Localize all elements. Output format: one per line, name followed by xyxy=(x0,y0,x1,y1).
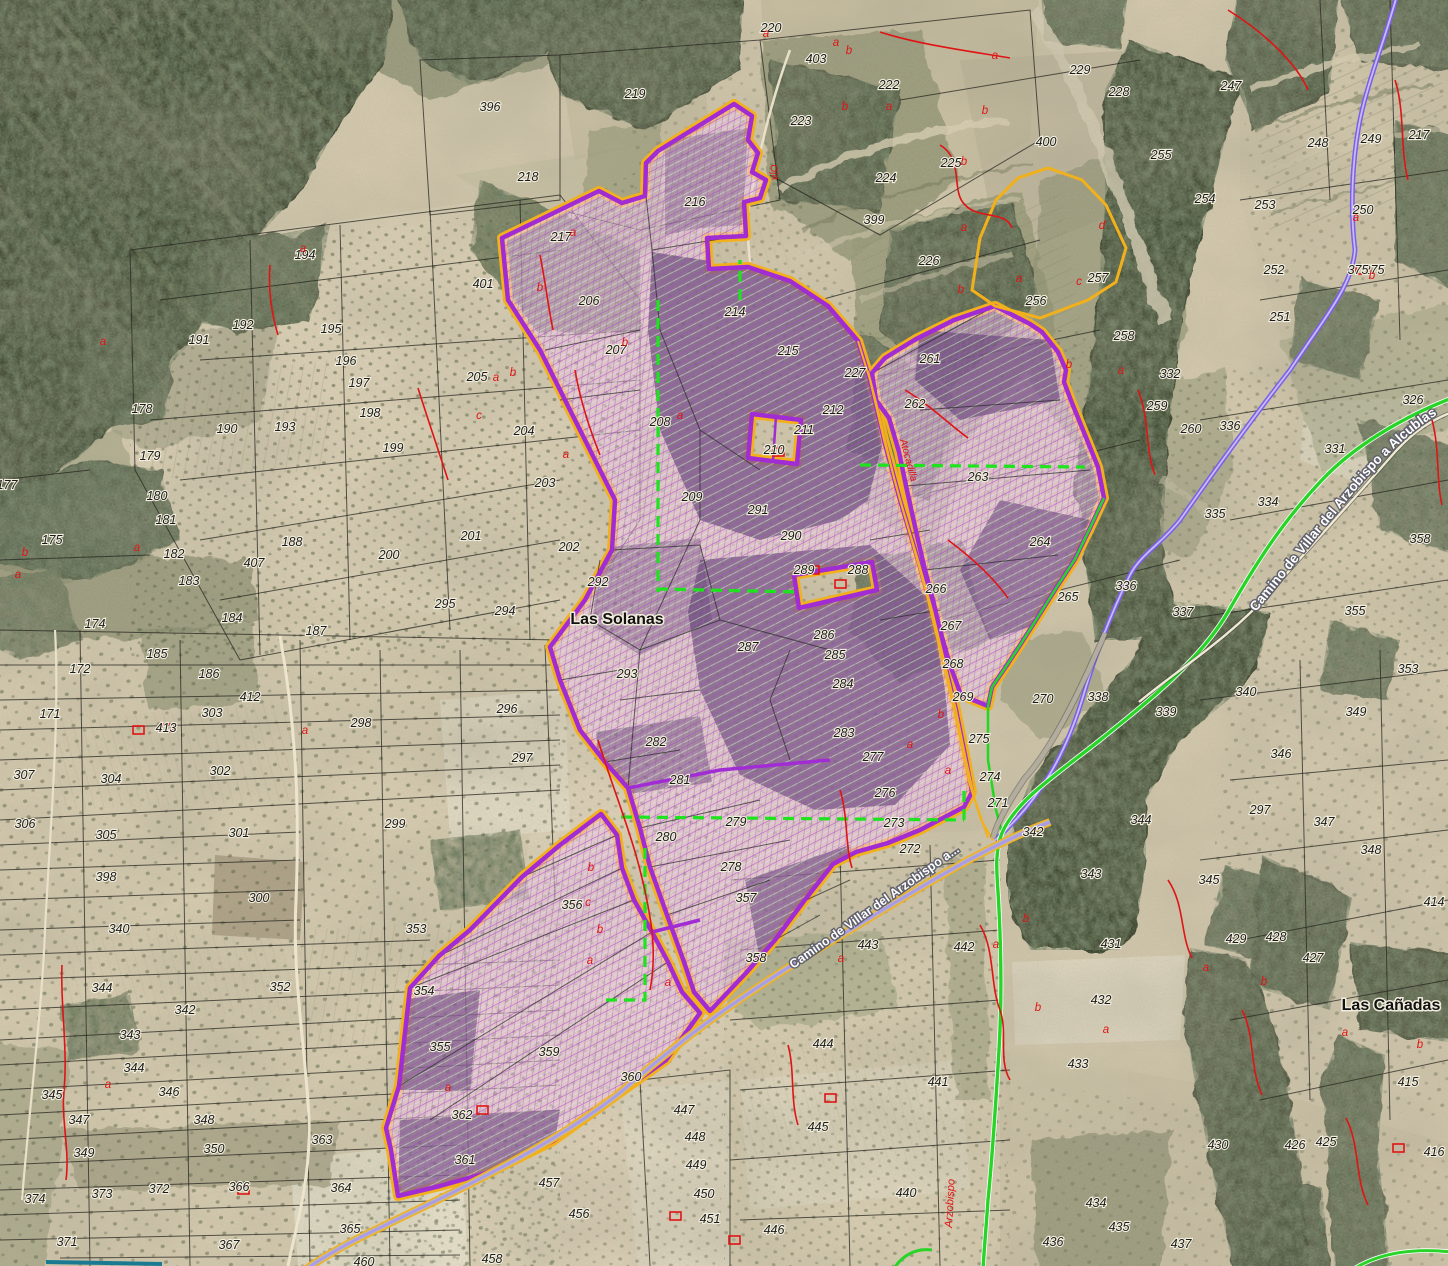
svg-text:209: 209 xyxy=(681,490,703,504)
svg-text:228: 228 xyxy=(1108,85,1130,99)
svg-text:183: 183 xyxy=(179,574,200,588)
svg-text:c: c xyxy=(585,897,591,909)
svg-text:373: 373 xyxy=(92,1187,113,1201)
svg-text:a: a xyxy=(1118,365,1124,377)
svg-text:a: a xyxy=(961,222,967,234)
svg-text:457: 457 xyxy=(539,1176,561,1190)
svg-text:278: 278 xyxy=(720,860,742,874)
svg-text:400: 400 xyxy=(1036,135,1057,149)
svg-text:a: a xyxy=(15,569,21,581)
svg-text:251: 251 xyxy=(1269,310,1291,324)
svg-text:a: a xyxy=(1342,1027,1348,1039)
svg-text:a: a xyxy=(1016,273,1022,285)
svg-text:a: a xyxy=(677,410,683,422)
svg-text:344: 344 xyxy=(124,1061,145,1075)
svg-text:212: 212 xyxy=(822,403,844,417)
svg-text:349: 349 xyxy=(74,1146,95,1160)
svg-text:b: b xyxy=(961,156,968,168)
svg-text:b: b xyxy=(597,924,604,936)
svg-text:199: 199 xyxy=(383,441,404,455)
svg-text:174: 174 xyxy=(85,617,106,631)
svg-text:197: 197 xyxy=(349,376,371,390)
svg-text:356: 356 xyxy=(562,898,583,912)
svg-text:255: 255 xyxy=(1150,148,1172,162)
svg-text:a: a xyxy=(665,977,671,989)
svg-text:205: 205 xyxy=(466,370,488,384)
svg-text:413: 413 xyxy=(156,721,177,735)
svg-text:a: a xyxy=(100,336,106,348)
svg-text:284: 284 xyxy=(832,677,854,691)
svg-text:216: 216 xyxy=(684,195,706,209)
svg-text:b: b xyxy=(958,284,965,296)
svg-text:204: 204 xyxy=(513,424,535,438)
svg-text:348: 348 xyxy=(1361,843,1382,857)
svg-text:303: 303 xyxy=(202,706,223,720)
svg-text:342: 342 xyxy=(1023,825,1044,839)
svg-text:339: 339 xyxy=(1156,705,1177,719)
svg-text:227: 227 xyxy=(844,366,867,380)
svg-text:c: c xyxy=(476,410,482,422)
svg-text:178: 178 xyxy=(132,402,153,416)
svg-text:a: a xyxy=(570,227,576,239)
svg-text:343: 343 xyxy=(120,1028,141,1042)
svg-text:b: b xyxy=(938,709,945,721)
svg-text:c: c xyxy=(1076,276,1082,288)
svg-text:177: 177 xyxy=(0,478,18,492)
svg-text:274: 274 xyxy=(979,770,1001,784)
svg-text:340: 340 xyxy=(109,922,130,936)
svg-text:217: 217 xyxy=(1408,128,1431,142)
svg-text:441: 441 xyxy=(928,1075,949,1089)
svg-text:279: 279 xyxy=(725,815,747,829)
svg-text:261: 261 xyxy=(919,352,941,366)
svg-text:334: 334 xyxy=(1258,495,1279,509)
svg-text:445: 445 xyxy=(808,1120,829,1134)
svg-text:272: 272 xyxy=(899,842,921,856)
svg-text:171: 171 xyxy=(40,707,61,721)
svg-text:259: 259 xyxy=(1146,399,1168,413)
svg-text:460: 460 xyxy=(354,1255,375,1266)
svg-text:266: 266 xyxy=(925,582,947,596)
svg-text:360: 360 xyxy=(621,1070,642,1084)
svg-text:358: 358 xyxy=(1410,532,1431,546)
svg-text:431: 431 xyxy=(1101,937,1122,951)
svg-text:355: 355 xyxy=(430,1040,451,1054)
svg-text:353: 353 xyxy=(1398,662,1419,676)
svg-text:218: 218 xyxy=(517,170,539,184)
svg-text:352: 352 xyxy=(270,980,291,994)
svg-text:446: 446 xyxy=(764,1223,785,1237)
svg-text:214: 214 xyxy=(724,305,746,319)
svg-text:253: 253 xyxy=(1254,198,1276,212)
svg-text:443: 443 xyxy=(858,938,879,952)
svg-text:428: 428 xyxy=(1266,930,1287,944)
svg-text:260: 260 xyxy=(1180,422,1202,436)
svg-text:433: 433 xyxy=(1068,1057,1089,1071)
svg-text:444: 444 xyxy=(813,1037,834,1051)
svg-text:b: b xyxy=(1066,359,1073,371)
svg-text:195: 195 xyxy=(321,322,342,336)
svg-text:a: a xyxy=(300,243,306,255)
svg-text:304: 304 xyxy=(101,772,122,786)
svg-text:a: a xyxy=(445,1082,451,1094)
svg-text:191: 191 xyxy=(189,333,210,347)
svg-text:a: a xyxy=(1103,1024,1109,1036)
svg-text:429: 429 xyxy=(1226,932,1247,946)
svg-text:285: 285 xyxy=(824,648,846,662)
svg-text:b: b xyxy=(982,105,989,117)
svg-text:a: a xyxy=(134,542,140,554)
svg-text:451: 451 xyxy=(700,1212,721,1226)
svg-text:344: 344 xyxy=(1131,813,1152,827)
svg-text:247: 247 xyxy=(1220,79,1243,93)
svg-text:b: b xyxy=(588,862,595,874)
svg-text:301: 301 xyxy=(229,826,250,840)
svg-text:188: 188 xyxy=(282,535,303,549)
svg-text:b: b xyxy=(1417,1039,1424,1051)
svg-text:434: 434 xyxy=(1086,1196,1107,1210)
svg-text:371: 371 xyxy=(57,1235,78,1249)
svg-text:361: 361 xyxy=(455,1153,476,1167)
svg-text:264: 264 xyxy=(1029,535,1051,549)
svg-text:331: 331 xyxy=(1325,442,1346,456)
svg-text:291: 291 xyxy=(747,503,769,517)
svg-text:226: 226 xyxy=(918,254,940,268)
svg-text:198: 198 xyxy=(360,406,381,420)
svg-text:192: 192 xyxy=(233,318,254,332)
svg-text:262: 262 xyxy=(904,397,926,411)
svg-text:b: b xyxy=(22,547,29,559)
svg-text:365: 365 xyxy=(340,1222,361,1236)
svg-text:355: 355 xyxy=(1345,604,1366,618)
svg-text:d: d xyxy=(1099,220,1106,232)
svg-text:a: a xyxy=(838,953,844,965)
svg-text:196: 196 xyxy=(336,354,357,368)
svg-text:346: 346 xyxy=(1271,747,1292,761)
svg-text:b: b xyxy=(846,45,853,57)
svg-text:222: 222 xyxy=(878,78,900,92)
svg-text:287: 287 xyxy=(737,640,760,654)
svg-text:b: b xyxy=(1035,1002,1042,1014)
svg-text:a: a xyxy=(302,725,308,737)
svg-text:211: 211 xyxy=(793,423,814,437)
svg-text:294: 294 xyxy=(494,604,516,618)
svg-text:354: 354 xyxy=(414,984,435,998)
svg-text:345: 345 xyxy=(1199,873,1220,887)
svg-text:281: 281 xyxy=(669,773,691,787)
svg-text:399: 399 xyxy=(864,213,885,227)
svg-text:289: 289 xyxy=(793,563,815,577)
svg-text:347: 347 xyxy=(69,1113,91,1127)
svg-text:442: 442 xyxy=(954,940,975,954)
svg-text:414: 414 xyxy=(1424,895,1445,909)
svg-text:254: 254 xyxy=(1194,192,1216,206)
svg-text:258: 258 xyxy=(1113,329,1135,343)
svg-text:407: 407 xyxy=(244,556,266,570)
svg-text:256: 256 xyxy=(1025,294,1047,308)
svg-text:416: 416 xyxy=(1424,1145,1445,1159)
svg-text:430: 430 xyxy=(1208,1138,1229,1152)
svg-text:344: 344 xyxy=(92,981,113,995)
svg-text:269: 269 xyxy=(952,690,974,704)
svg-text:b: b xyxy=(1369,270,1376,282)
svg-text:280: 280 xyxy=(655,830,677,844)
svg-text:326: 326 xyxy=(1403,393,1424,407)
svg-text:363: 363 xyxy=(312,1133,333,1147)
svg-text:201: 201 xyxy=(460,529,482,543)
svg-text:346: 346 xyxy=(159,1085,180,1099)
svg-text:229: 229 xyxy=(1069,63,1091,77)
svg-text:202: 202 xyxy=(558,540,580,554)
svg-text:375: 375 xyxy=(1348,263,1369,277)
svg-text:306: 306 xyxy=(15,817,36,831)
svg-text:210: 210 xyxy=(763,443,785,457)
svg-text:398: 398 xyxy=(96,870,117,884)
svg-text:337: 337 xyxy=(1173,605,1195,619)
svg-text:426: 426 xyxy=(1285,1138,1306,1152)
svg-text:248: 248 xyxy=(1307,136,1329,150)
svg-text:299: 299 xyxy=(384,817,406,831)
svg-text:345: 345 xyxy=(42,1088,63,1102)
svg-text:b: b xyxy=(1261,976,1268,988)
svg-text:215: 215 xyxy=(777,344,799,358)
svg-text:295: 295 xyxy=(434,597,456,611)
svg-text:456: 456 xyxy=(569,1207,590,1221)
svg-text:296: 296 xyxy=(496,702,518,716)
svg-text:184: 184 xyxy=(222,611,243,625)
svg-text:367: 367 xyxy=(219,1238,241,1252)
svg-text:200: 200 xyxy=(378,548,400,562)
svg-text:271: 271 xyxy=(987,796,1009,810)
svg-text:335: 335 xyxy=(1205,507,1226,521)
svg-text:268: 268 xyxy=(942,657,964,671)
svg-text:181: 181 xyxy=(156,513,177,527)
svg-text:185: 185 xyxy=(147,647,168,661)
svg-text:263: 263 xyxy=(967,470,989,484)
svg-text:179: 179 xyxy=(140,449,161,463)
svg-text:364: 364 xyxy=(331,1181,352,1195)
svg-text:286: 286 xyxy=(813,628,835,642)
svg-text:412: 412 xyxy=(240,690,261,704)
svg-text:Las Cañadas: Las Cañadas xyxy=(1342,997,1441,1014)
svg-text:270: 270 xyxy=(1032,692,1054,706)
svg-text:435: 435 xyxy=(1109,1220,1130,1234)
svg-text:401: 401 xyxy=(473,277,494,291)
svg-text:338: 338 xyxy=(1088,690,1109,704)
svg-text:283: 283 xyxy=(833,726,855,740)
svg-text:224: 224 xyxy=(875,171,897,185)
svg-text:437: 437 xyxy=(1171,1237,1193,1251)
svg-text:a: a xyxy=(886,101,892,113)
svg-text:288: 288 xyxy=(847,563,869,577)
svg-text:425: 425 xyxy=(1316,1135,1337,1149)
svg-text:282: 282 xyxy=(645,735,667,749)
svg-text:372: 372 xyxy=(149,1182,170,1196)
svg-text:180: 180 xyxy=(147,489,168,503)
svg-text:447: 447 xyxy=(674,1103,696,1117)
svg-text:182: 182 xyxy=(164,547,185,561)
svg-text:448: 448 xyxy=(685,1130,706,1144)
svg-text:357: 357 xyxy=(736,891,758,905)
svg-text:292: 292 xyxy=(587,575,609,589)
svg-text:432: 432 xyxy=(1091,993,1112,1007)
svg-text:297: 297 xyxy=(511,751,534,765)
svg-text:219: 219 xyxy=(624,87,646,101)
svg-text:a: a xyxy=(587,955,593,967)
svg-text:187: 187 xyxy=(306,624,328,638)
svg-text:b: b xyxy=(537,282,544,294)
svg-text:359: 359 xyxy=(539,1045,560,1059)
svg-text:336: 336 xyxy=(1116,579,1137,593)
svg-text:366: 366 xyxy=(229,1180,250,1194)
svg-text:302: 302 xyxy=(210,764,231,778)
svg-text:267: 267 xyxy=(940,619,963,633)
svg-text:249: 249 xyxy=(1360,132,1382,146)
svg-text:342: 342 xyxy=(175,1003,196,1017)
svg-text:450: 450 xyxy=(694,1187,715,1201)
svg-text:332: 332 xyxy=(1160,367,1181,381)
svg-text:349: 349 xyxy=(1346,705,1367,719)
svg-text:336: 336 xyxy=(1220,419,1241,433)
svg-text:358: 358 xyxy=(746,951,767,965)
svg-text:307: 307 xyxy=(14,768,36,782)
svg-text:a: a xyxy=(493,372,499,384)
svg-text:297: 297 xyxy=(1249,803,1272,817)
svg-text:a: a xyxy=(833,37,839,49)
svg-text:298: 298 xyxy=(350,716,372,730)
svg-text:350: 350 xyxy=(204,1142,225,1156)
svg-text:a: a xyxy=(993,939,999,951)
svg-text:b: b xyxy=(1023,913,1030,925)
svg-text:340: 340 xyxy=(1236,685,1257,699)
svg-text:193: 193 xyxy=(275,420,296,434)
svg-text:a: a xyxy=(907,739,913,751)
svg-text:449: 449 xyxy=(686,1158,707,1172)
svg-text:175: 175 xyxy=(42,533,63,547)
svg-text:353: 353 xyxy=(406,922,427,936)
svg-text:362: 362 xyxy=(452,1108,473,1122)
svg-text:290: 290 xyxy=(780,529,802,543)
svg-text:396: 396 xyxy=(480,100,501,114)
svg-text:a: a xyxy=(763,28,769,40)
svg-text:b: b xyxy=(622,337,629,349)
svg-text:257: 257 xyxy=(1087,271,1110,285)
svg-text:348: 348 xyxy=(194,1113,215,1127)
svg-text:347: 347 xyxy=(1314,815,1336,829)
svg-text:206: 206 xyxy=(578,294,600,308)
svg-text:293: 293 xyxy=(616,667,638,681)
svg-text:343: 343 xyxy=(1081,867,1102,881)
svg-text:223: 223 xyxy=(790,114,812,128)
svg-text:208: 208 xyxy=(649,415,671,429)
svg-text:b: b xyxy=(510,367,517,379)
svg-text:a: a xyxy=(992,50,998,62)
svg-text:427: 427 xyxy=(1303,951,1325,965)
svg-text:a: a xyxy=(563,449,569,461)
svg-text:186: 186 xyxy=(199,667,220,681)
svg-text:203: 203 xyxy=(534,476,556,490)
svg-text:190: 190 xyxy=(217,422,238,436)
svg-text:b: b xyxy=(842,101,849,113)
svg-text:305: 305 xyxy=(96,828,117,842)
svg-text:Las Solanas: Las Solanas xyxy=(570,611,663,628)
svg-text:458: 458 xyxy=(482,1252,503,1266)
svg-text:273: 273 xyxy=(883,816,905,830)
svg-text:440: 440 xyxy=(896,1186,917,1200)
svg-text:225: 225 xyxy=(940,156,962,170)
svg-text:300: 300 xyxy=(249,891,270,905)
svg-text:a: a xyxy=(1353,212,1359,224)
svg-text:265: 265 xyxy=(1057,590,1079,604)
svg-text:276: 276 xyxy=(874,786,896,800)
svg-text:403: 403 xyxy=(806,52,827,66)
svg-text:277: 277 xyxy=(862,750,885,764)
svg-text:436: 436 xyxy=(1043,1235,1064,1249)
svg-text:374: 374 xyxy=(25,1192,46,1206)
svg-text:252: 252 xyxy=(1263,263,1285,277)
svg-text:a: a xyxy=(945,765,951,777)
svg-text:172: 172 xyxy=(70,662,91,676)
svg-text:a: a xyxy=(105,1079,111,1091)
svg-text:a: a xyxy=(1203,962,1209,974)
svg-text:275: 275 xyxy=(968,732,990,746)
svg-text:415: 415 xyxy=(1398,1075,1419,1089)
